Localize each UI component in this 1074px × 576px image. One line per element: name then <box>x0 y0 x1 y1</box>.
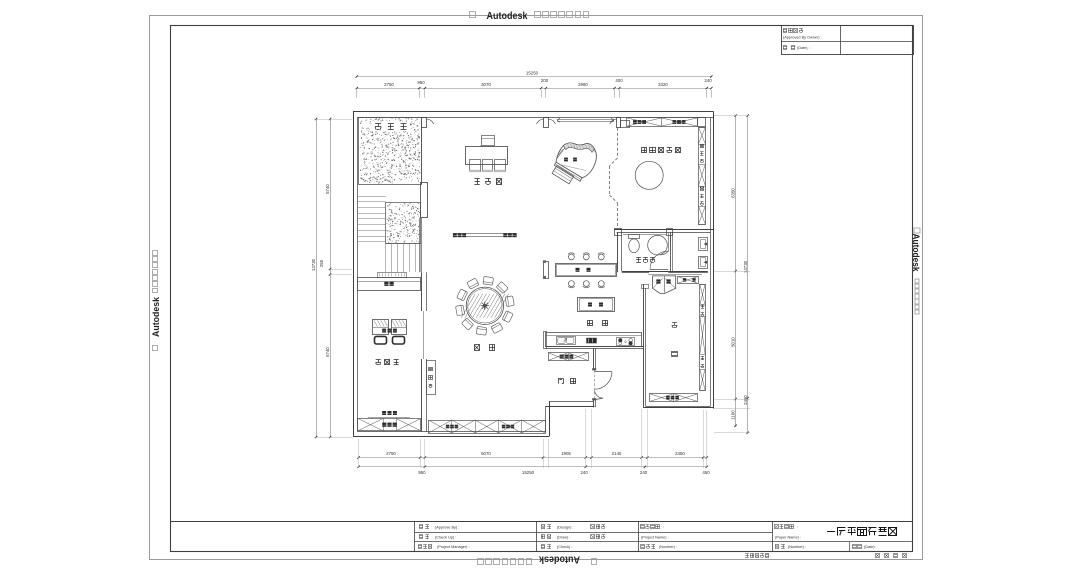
svg-text:Autodesk: Autodesk <box>487 11 528 22</box>
svg-text:(Check Up) :: (Check Up) : <box>435 535 456 539</box>
svg-text:(Draw) :: (Draw) : <box>557 535 571 539</box>
svg-text:15250: 15250 <box>526 70 539 75</box>
svg-text:(Approved By Owner) :: (Approved By Owner) : <box>783 36 822 40</box>
svg-text:3070: 3070 <box>481 82 491 87</box>
svg-text:13730: 13730 <box>743 260 748 273</box>
svg-text:2140: 2140 <box>612 451 622 456</box>
svg-text:(Date):: (Date): <box>864 545 876 549</box>
svg-text:240: 240 <box>580 470 588 475</box>
svg-text::: : <box>797 525 798 529</box>
svg-text:5740: 5740 <box>325 184 330 194</box>
svg-text:(Check) :: (Check) : <box>557 545 572 549</box>
svg-text:2980: 2980 <box>578 82 588 87</box>
svg-text:2450: 2450 <box>743 395 748 405</box>
svg-text:5070: 5070 <box>481 451 491 456</box>
svg-text:(Number) :: (Number) : <box>788 545 806 549</box>
svg-text:Autodesk: Autodesk <box>151 296 162 337</box>
svg-text:(Date) :: (Date) : <box>797 46 810 50</box>
svg-text:2450: 2450 <box>675 451 685 456</box>
svg-text:1100: 1100 <box>731 410 736 420</box>
svg-text:15250: 15250 <box>522 470 535 475</box>
svg-text:(Number) :: (Number) : <box>659 545 677 549</box>
svg-text:13730: 13730 <box>311 258 316 271</box>
svg-text:240: 240 <box>640 470 648 475</box>
svg-text:(Paper Name) :: (Paper Name) : <box>775 535 801 539</box>
svg-text:400: 400 <box>615 78 623 83</box>
svg-text:950: 950 <box>418 470 426 475</box>
svg-text:Autodesk: Autodesk <box>911 234 921 273</box>
svg-text:200: 200 <box>541 78 549 83</box>
svg-text:(Project Name) :: (Project Name) : <box>641 535 669 539</box>
svg-text:3320: 3320 <box>658 82 668 87</box>
svg-text:(Design) :: (Design) : <box>557 525 573 529</box>
svg-text::: : <box>770 554 771 558</box>
svg-text:250: 250 <box>319 259 324 267</box>
svg-text:(Approve By) :: (Approve By) : <box>435 525 459 529</box>
svg-text:450: 450 <box>702 470 710 475</box>
svg-text:1905: 1905 <box>561 451 571 456</box>
svg-text:2750: 2750 <box>384 82 394 87</box>
svg-text:5010: 5010 <box>731 337 736 347</box>
svg-text:6740: 6740 <box>325 347 330 357</box>
svg-text:2750: 2750 <box>386 451 396 456</box>
svg-text:240: 240 <box>704 78 712 83</box>
svg-text:950: 950 <box>417 80 425 85</box>
svg-text:6350: 6350 <box>731 188 736 198</box>
svg-text:(Project Manager) :: (Project Manager) : <box>437 545 470 549</box>
svg-text:Autodesk: Autodesk <box>539 554 580 565</box>
svg-text::: : <box>663 525 664 529</box>
